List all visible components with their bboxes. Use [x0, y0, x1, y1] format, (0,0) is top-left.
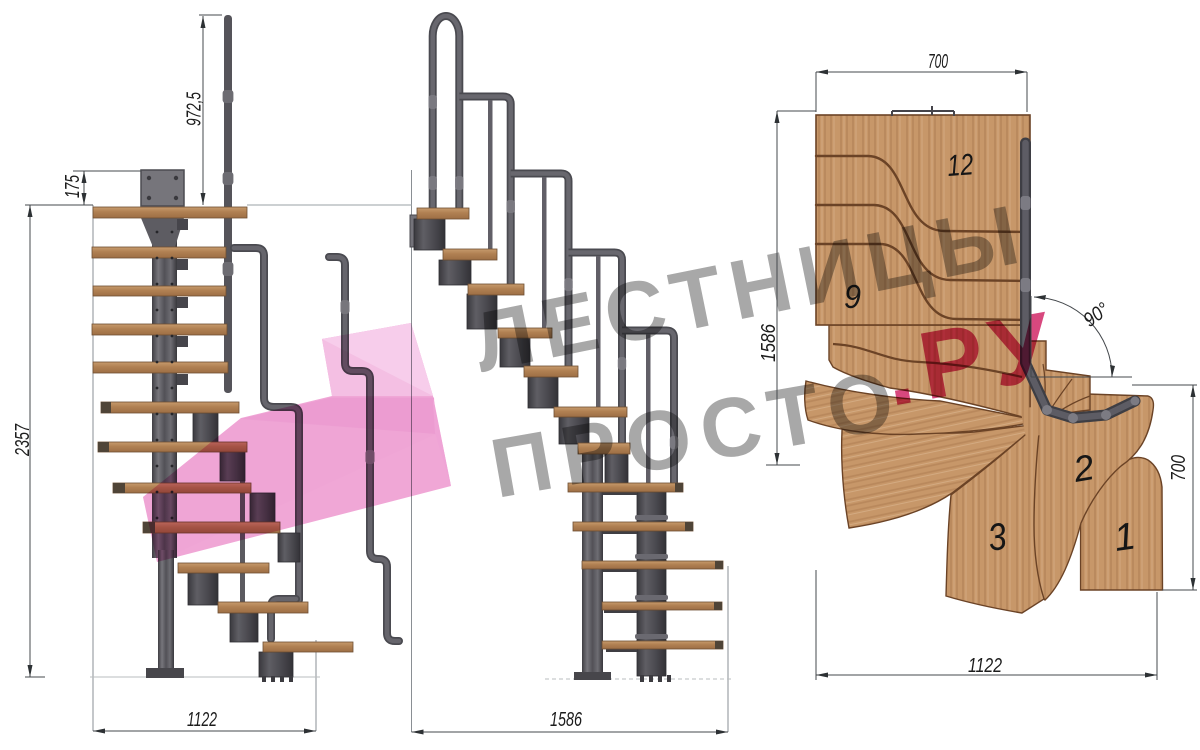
svg-text:2357: 2357 [12, 423, 34, 456]
svg-text:700: 700 [928, 51, 948, 73]
svg-text:1122: 1122 [187, 709, 217, 731]
svg-text:12: 12 [946, 148, 974, 183]
svg-text:1586: 1586 [550, 709, 583, 731]
svg-text:972,5: 972,5 [184, 91, 206, 126]
svg-text:700: 700 [1168, 455, 1190, 481]
svg-text:175: 175 [62, 174, 84, 198]
svg-text:1122: 1122 [968, 655, 1002, 677]
svg-text:1586: 1586 [758, 323, 780, 362]
